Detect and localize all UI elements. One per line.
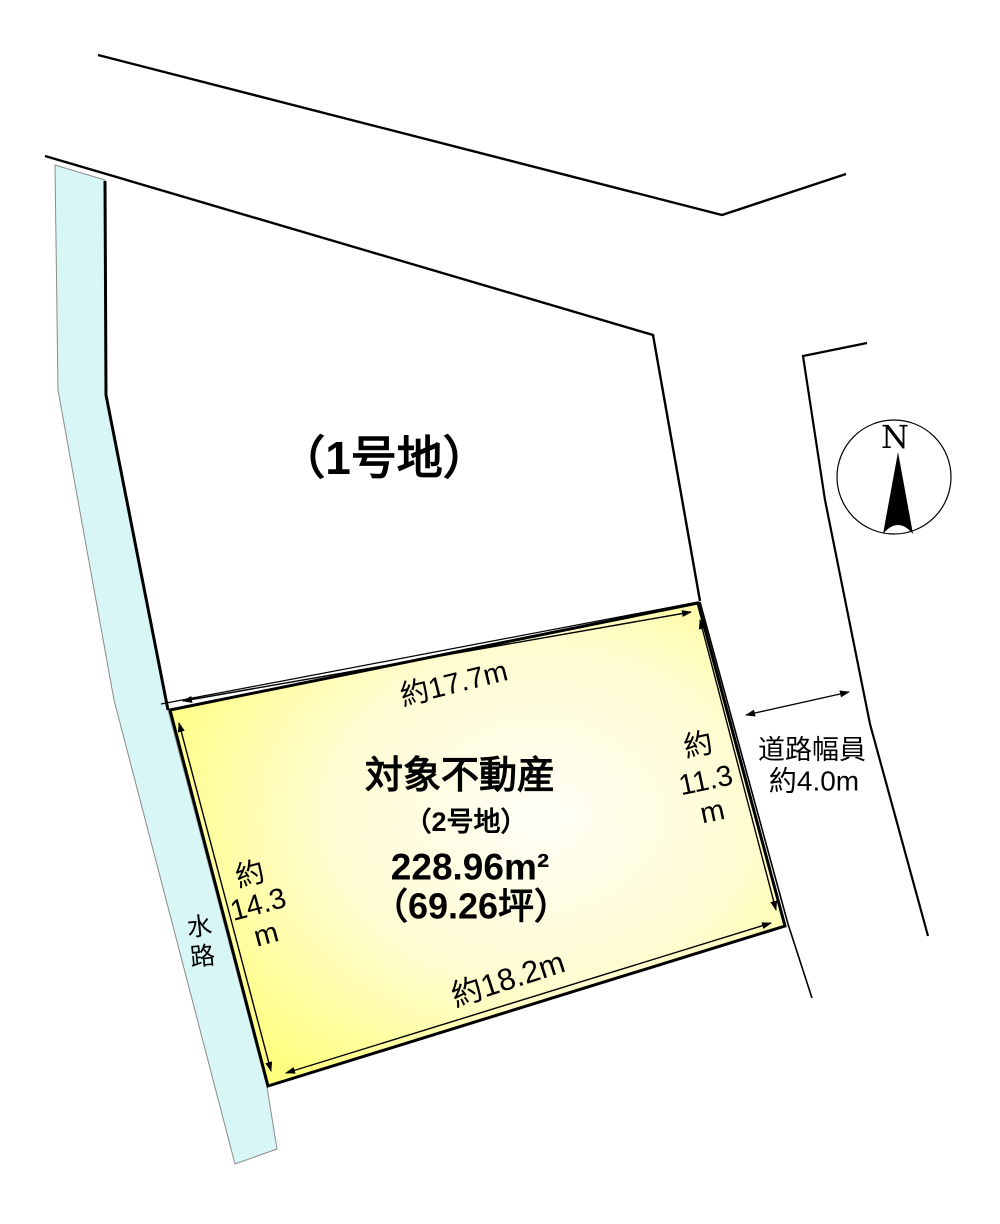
land-plot-diagram-page: （1号地） 約17.7m 対象不動産 （2号地） 228.96m² （69.26… [0, 0, 1000, 1224]
target-area-tsubo: （69.26坪） [372, 886, 570, 927]
waterway-shape [55, 165, 277, 1164]
plot-diagram-canvas: （1号地） 約17.7m 対象不動産 （2号地） 228.96m² （69.26… [0, 0, 1000, 1224]
target-lot-label: （2号地） [404, 807, 527, 837]
compass-north-label: N [881, 418, 909, 456]
road-width-arrow [746, 692, 849, 715]
road-east-edge-line [803, 343, 928, 936]
road-north-edge-line [98, 55, 846, 215]
compass: N [837, 418, 951, 534]
waterway-label-char2: 路 [189, 942, 217, 972]
compass-needle-icon [883, 452, 913, 534]
target-title: 対象不動産 [365, 755, 555, 797]
road-south-edge-line [45, 156, 700, 601]
lot1-label: （1号地） [279, 432, 489, 484]
road-width-label-line1: 道路幅員 [758, 735, 866, 765]
target-area-sqm: 228.96m² [391, 847, 549, 888]
road-width-label-line2: 約4.0m [769, 766, 859, 797]
waterway-label-char1: 水 [186, 912, 214, 942]
